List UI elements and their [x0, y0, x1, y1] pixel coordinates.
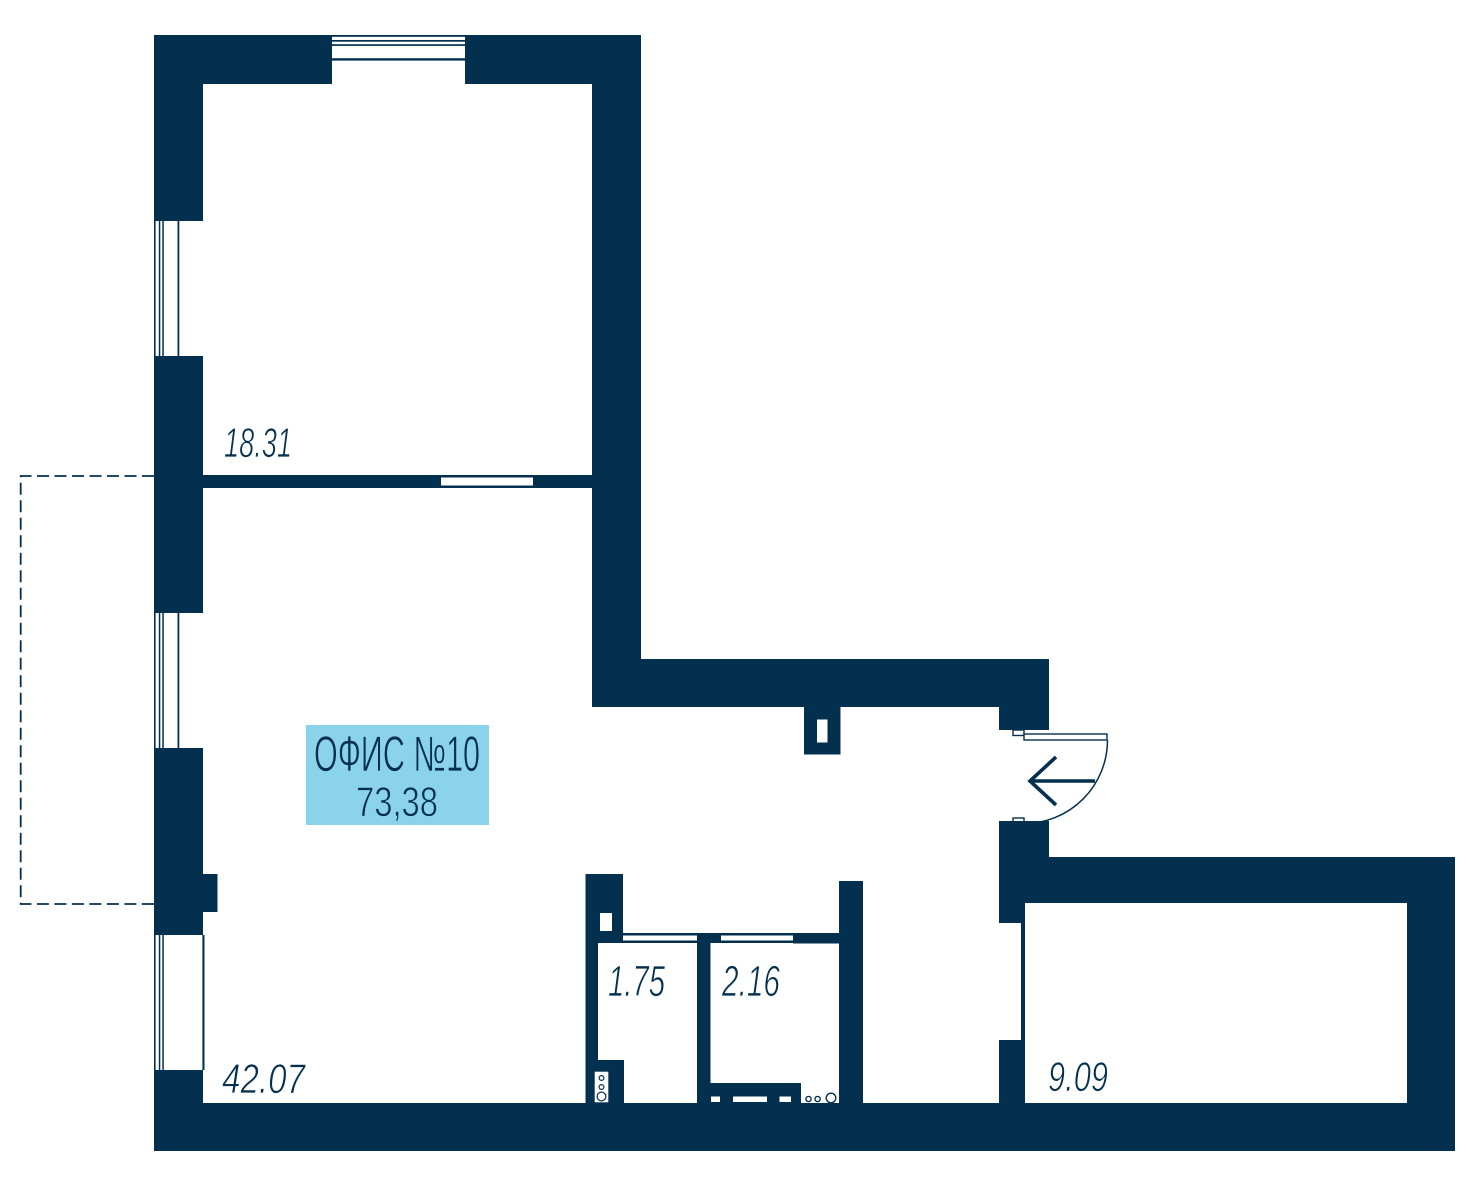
svg-text:42.07: 42.07	[222, 1055, 306, 1102]
svg-text:18.31: 18.31	[224, 419, 292, 466]
svg-text:ОФИС №10: ОФИС №10	[314, 726, 480, 782]
svg-text:2.16: 2.16	[721, 957, 780, 1006]
svg-text:73,38: 73,38	[356, 778, 438, 825]
svg-text:9.09: 9.09	[1048, 1053, 1108, 1100]
svg-text:1.75: 1.75	[608, 957, 665, 1006]
